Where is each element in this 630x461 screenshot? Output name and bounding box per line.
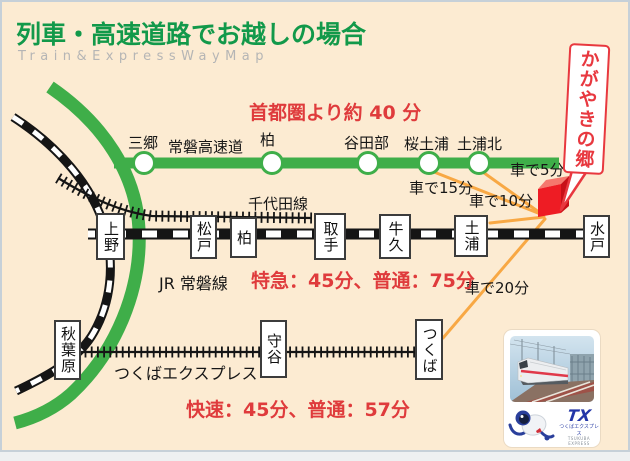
station-box-toride: 取手 xyxy=(314,213,346,260)
station-box-akihabara: 秋葉原 xyxy=(54,320,81,380)
page-title: 列車・高速道路でお越しの場合 xyxy=(16,15,366,51)
tx-logo: TX つくばエクスプレス TSUKUBA EXPRESS xyxy=(559,408,599,447)
drive-time-15min: 車で15分 xyxy=(409,177,473,198)
tx-logo-mark: TX xyxy=(558,408,600,424)
tx-logo-en: TSUKUBA EXPRESS xyxy=(559,437,599,447)
station-box-moriya: 守谷 xyxy=(260,320,287,378)
page-subtitle: Train&ExpressWayMap xyxy=(18,49,269,64)
ic-label-kashiwa: 柏 xyxy=(260,129,275,150)
station-box-kashiwa: 柏 xyxy=(230,217,257,258)
station-box-tsukuba: つくば xyxy=(415,319,443,380)
tx-photo-card: TX つくばエクスプレス TSUKUBA EXPRESS xyxy=(504,330,600,447)
station-box-matsudo: 松戸 xyxy=(190,215,217,259)
map-canvas: 列車・高速道路でお越しの場合 Train&ExpressWayMap 首都圏より… xyxy=(0,0,630,452)
station-box-tsuchiura: 土浦 xyxy=(454,215,488,257)
tx-time-note: 快速：45分、普通：57分 xyxy=(186,395,410,422)
destination-bubble: かがやきの郷 xyxy=(563,43,611,175)
tx-mascot-icon xyxy=(506,407,558,445)
expressway-line-label: 常磐高速道 xyxy=(168,136,243,157)
jr-time-note: 特急：45分、普通：75分 xyxy=(251,266,475,293)
ic-label-misato: 三郷 xyxy=(128,132,158,153)
tx-line-label: つくばエクスプレス xyxy=(114,360,258,384)
station-box-ushiku: 牛久 xyxy=(379,214,411,259)
ic-label-sakuradotsuchiura: 桜土浦 xyxy=(404,133,449,154)
expressway-time-note: 首都圏より約 40 分 xyxy=(249,98,421,125)
train-photo xyxy=(510,336,594,402)
station-box-mito: 水戸 xyxy=(583,215,610,258)
drive-time-10min: 車で10分 xyxy=(469,190,533,211)
ic-label-tsuchiurakita: 土浦北 xyxy=(457,133,502,154)
jr-line-label: JR 常磐線 xyxy=(159,270,228,294)
station-box-ueno: 上野 xyxy=(96,213,125,260)
ic-label-yatabe: 谷田部 xyxy=(344,132,389,153)
drive-time-5min: 車で5分 xyxy=(510,159,565,180)
chiyoda-line-label: 千代田線 xyxy=(248,193,308,214)
